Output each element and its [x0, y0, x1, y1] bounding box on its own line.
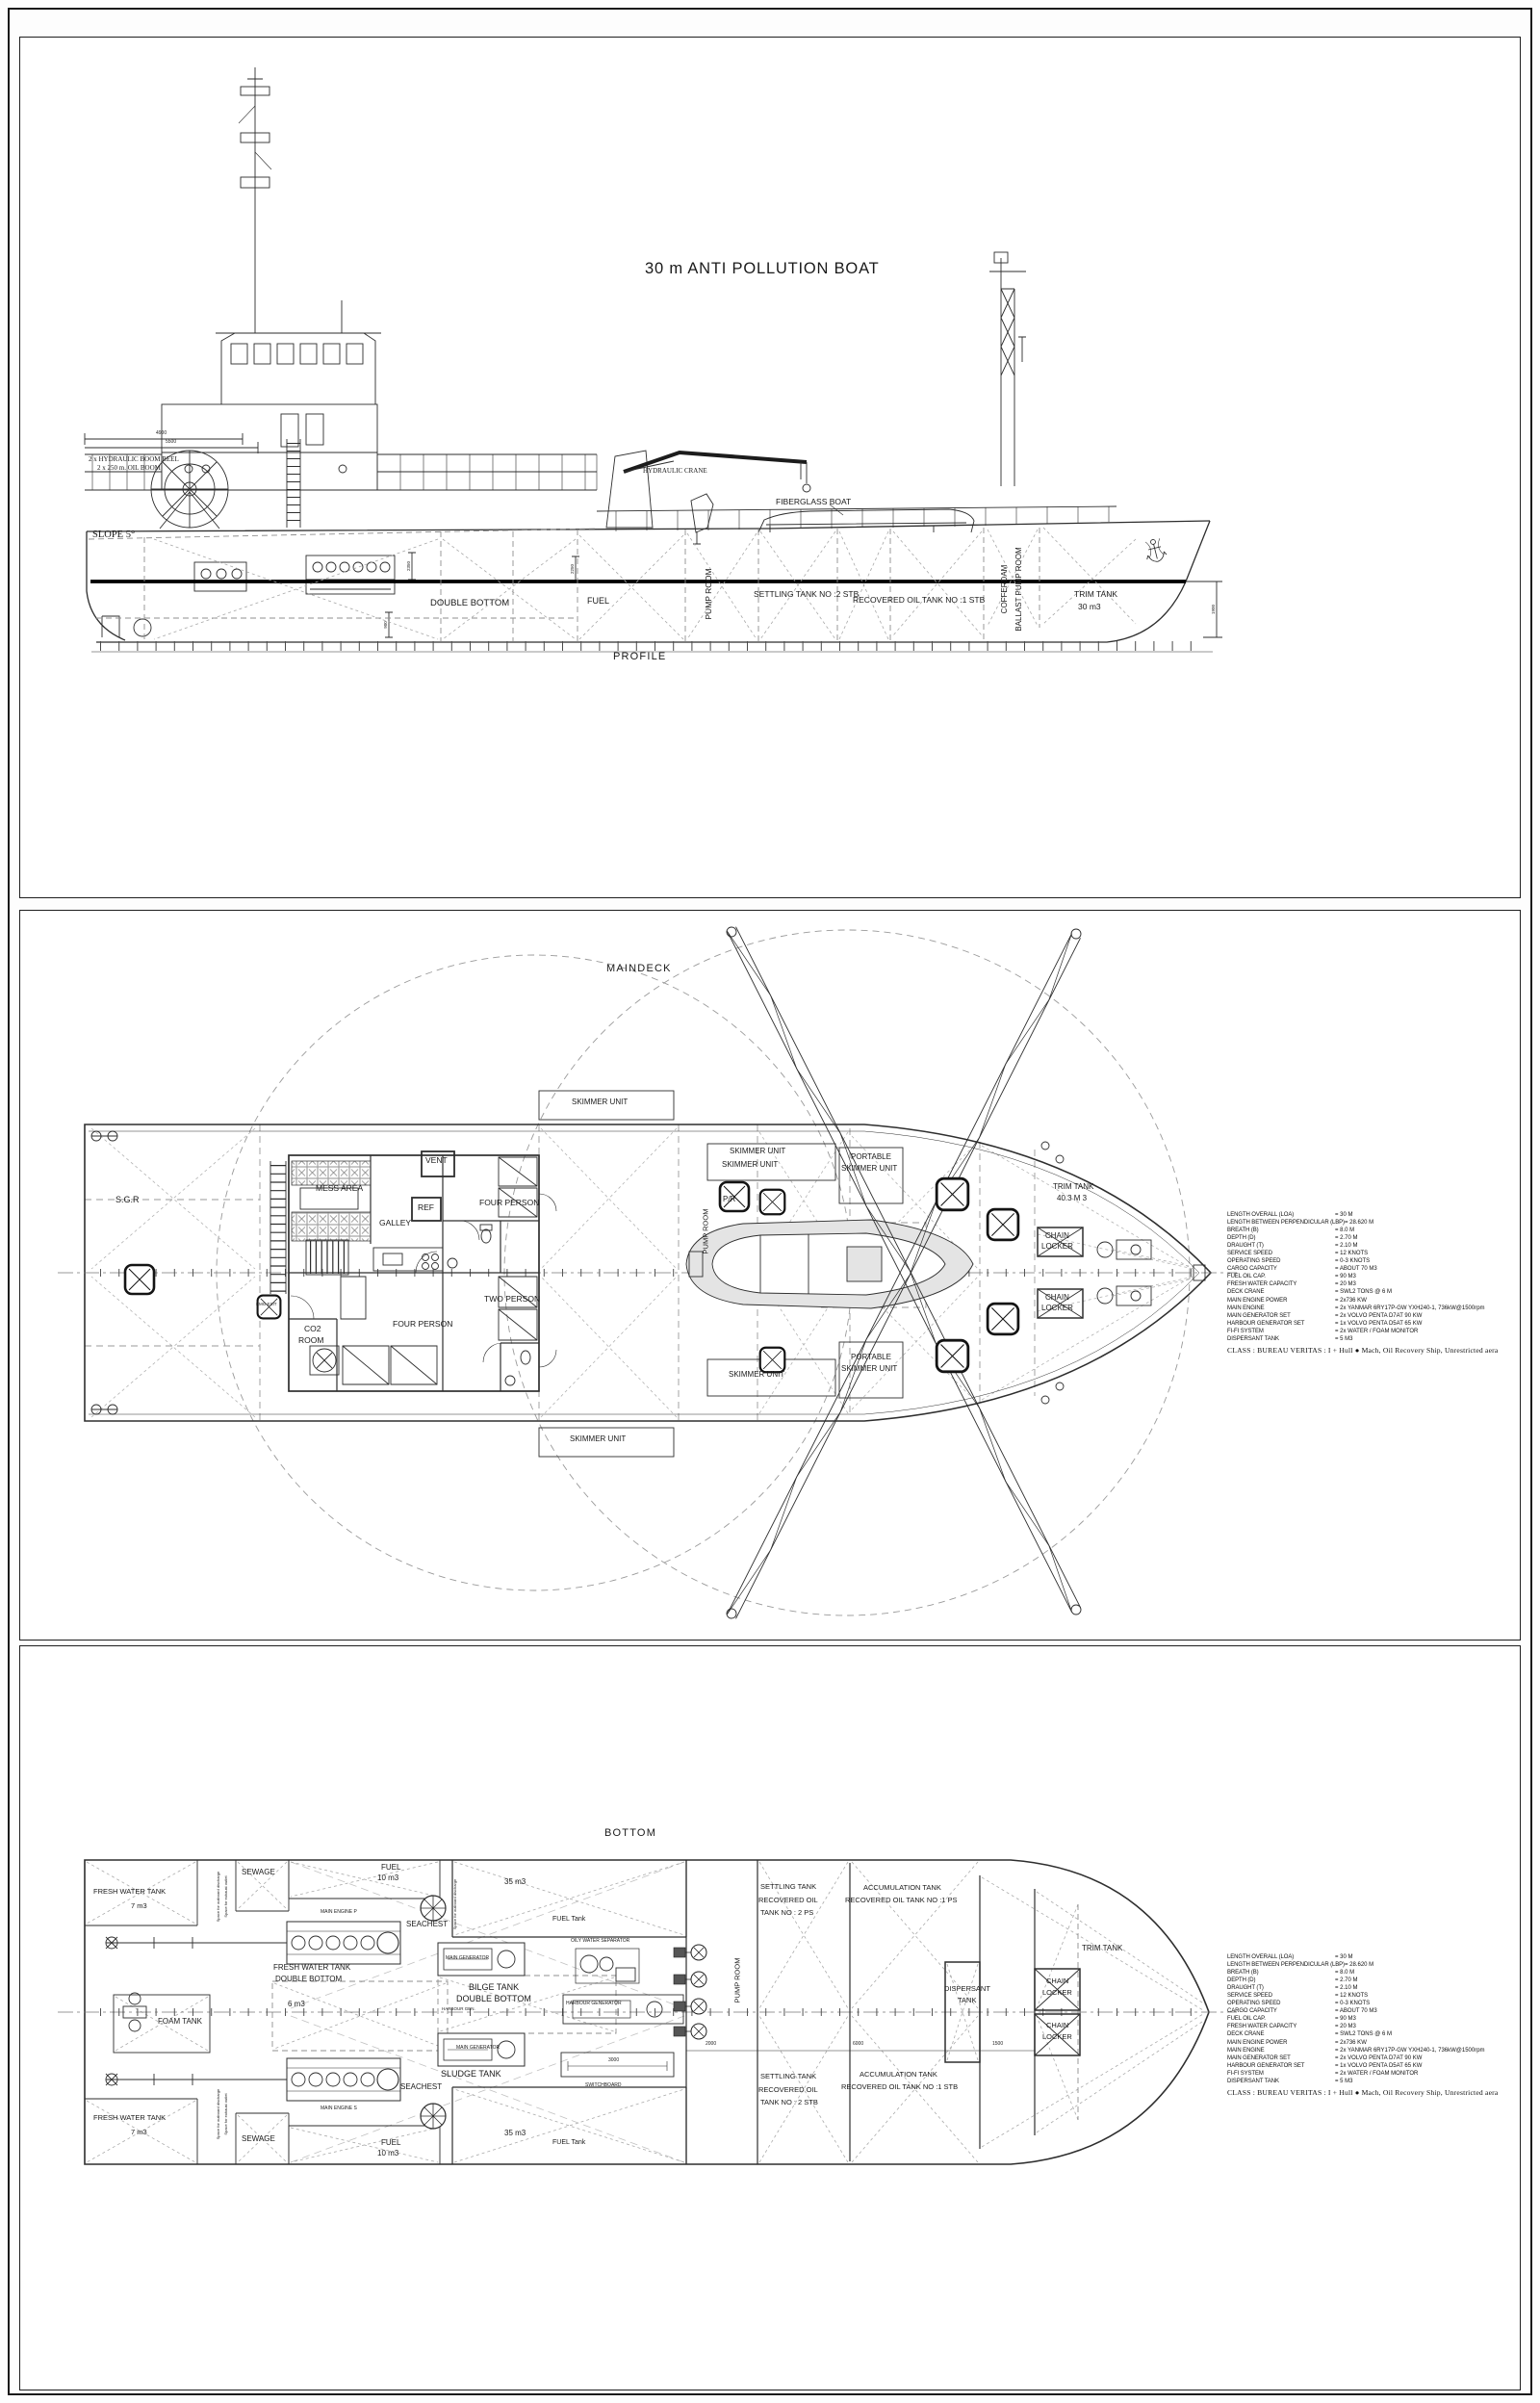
dim-1900: 1900: [1212, 605, 1217, 614]
dim-6000: 6000: [853, 2042, 863, 2047]
ballast-pump-room-label: BALLAST PUMP ROOM: [1015, 547, 1023, 631]
settling-ps-line2: RECOVERED OIL: [758, 1897, 818, 1904]
fresh-water-tank-upper-volume: 7 m3: [131, 1902, 147, 1910]
cofferdam-label: COFFERDAM: [1001, 565, 1009, 614]
particular-row: HARBOUR GENERATOR SET= 1x VOLVO PENTA D5…: [1227, 2062, 1508, 2070]
settling-tank-label: SETTLING TANK NO :2 STB: [754, 590, 859, 599]
class-notation-maindeck: CLASS : BUREAU VERITAS : I + Hull ● Mach…: [1227, 1346, 1508, 1355]
chain-locker-bottom-upper-line2: LOCKER: [1042, 1989, 1072, 1997]
fresh-water-tank-upper-label: FRESH WATER TANK: [93, 1888, 166, 1896]
space-exhaust-lower-note: Space for exhaust outlet: [224, 2093, 228, 2134]
portable-skimmer-upper-line2: SKIMMER UNIT: [841, 1165, 897, 1173]
chain-locker-bottom-lower-line2: LOCKER: [1042, 2033, 1072, 2041]
sgr-label: S.G.R: [115, 1196, 140, 1204]
dim-2250: 2250: [571, 564, 576, 574]
particulars-table-maindeck: LENGTH OVERALL (LOA)= 30 MLENGTH BETWEEN…: [1227, 1211, 1508, 1355]
particular-row: OPERATING SPEED= 0-3 KNOTS: [1227, 2000, 1508, 2007]
chain-locker-bottom-upper-line1: CHAIN: [1046, 1977, 1068, 1985]
particular-row: SERVICE SPEED= 12 KNOTS: [1227, 1992, 1508, 2000]
double-bottom-center-label: DOUBLE BOTTOM: [275, 1976, 342, 1983]
boom-reel-note-line1: 2 x HYDRAULIC BOOM REEL: [89, 456, 179, 463]
skimmer-unit-top-label: SKIMMER UNIT: [572, 1098, 628, 1106]
main-engine-p-label: MAIN ENGINE P: [321, 1910, 357, 1915]
settling-stb-line1: SETTLING TANK: [760, 2073, 816, 2080]
particular-row: BREATH (B)= 8.0 M: [1227, 1969, 1508, 1977]
trim-tank-label: TRIM TANK: [1074, 590, 1117, 599]
fiberglass-boat-label: FIBERGLASS BOAT: [776, 498, 851, 506]
oily-water-separator-label: OILY WATER SEPARATOR: [571, 1939, 629, 1944]
particular-row: DECK CRANE= SWL2 TONS @ 6 M: [1227, 1288, 1508, 1296]
dim-2000: 2000: [706, 2042, 716, 2047]
accumulation-stb-line2: RECOVERED OIL TANK NO :1 STB: [841, 2083, 958, 2091]
particular-row: LENGTH OVERALL (LOA)= 30 M: [1227, 1953, 1508, 1961]
particular-row: HARBOUR GENERATOR SET= 1x VOLVO PENTA D5…: [1227, 1320, 1508, 1328]
particular-row: DISPERSANT TANK= 5 M3: [1227, 2078, 1508, 2085]
particular-row: OPERATING SPEED= 0-3 KNOTS: [1227, 1257, 1508, 1265]
space-outboard-upper-note: Space for outboard discharge: [217, 1872, 220, 1922]
chain-locker-upper-line2: LOCKER: [1041, 1243, 1073, 1251]
particular-row: FUEL OIL CAP.= 90 M3: [1227, 1273, 1508, 1280]
slope-label: SLOPE 5°: [92, 530, 135, 541]
main-generator-lower-label: MAIN GENERATOR: [456, 2046, 500, 2051]
switchboard-label: SWITCHBOARD: [585, 2083, 622, 2088]
trim-tank-bottom-label: TRIM TANK: [1082, 1945, 1122, 1952]
foam-tank-label: FOAM TANK: [158, 2018, 202, 2026]
dim-2350: 2350: [407, 561, 412, 571]
trim-tank-maindeck-label: TRIM TANK: [1053, 1183, 1093, 1191]
main-engine-s-label: MAIN ENGINE S: [321, 2106, 357, 2111]
particular-row: LENGTH OVERALL (LOA)= 30 M: [1227, 1211, 1508, 1219]
dim-3000: 3000: [608, 2058, 619, 2063]
fuel-tank-lower-label: FUEL Tank: [552, 2139, 585, 2146]
recovered-oil-tank-label: RECOVERED OIL TANK NO :1 STB: [853, 596, 985, 605]
particular-row: FRESH WATER CAPACITY= 20 M3: [1227, 2023, 1508, 2030]
hydraulic-crane-label: HYDRAULIC CRANE: [643, 468, 707, 475]
mess-area-label: MESS AREA: [316, 1184, 363, 1193]
co2-room-line1: CO2: [304, 1325, 321, 1333]
particular-row: DISPERSANT TANK= 5 M3: [1227, 1335, 1508, 1343]
bilge-double-bottom-label: DOUBLE BOTTOM: [456, 1995, 531, 2003]
space-outboard-lower-note: Space for outboard discharge: [217, 2089, 220, 2139]
particular-row: FRESH WATER CAPACITY= 20 M3: [1227, 1280, 1508, 1288]
harbour-gen-small-label: HARBOUR GEN.: [442, 2007, 475, 2012]
fuel-10m3-upper-label: FUEL: [381, 1864, 400, 1872]
accumulation-ps-line2: RECOVERED OIL TANK NO :1 PS: [845, 1897, 958, 1904]
fuel-10m3-lower-label: FUEL: [381, 2139, 400, 2147]
seachest-upper-label: SEACHEST: [406, 1921, 448, 1928]
particular-row: CARGO CAPACITY= ABOUT 70 M3: [1227, 2007, 1508, 2015]
portable-skimmer-lower-line2: SKIMMER UNIT: [841, 1365, 897, 1373]
particular-row: BREATH (B)= 8.0 M: [1227, 1227, 1508, 1234]
dim-4900: 4900: [156, 431, 167, 436]
accumulation-stb-line1: ACCUMULATION TANK: [860, 2071, 937, 2079]
fresh-water-tank-lower-label: FRESH WATER TANK: [93, 2114, 166, 2122]
particular-row: DRAUGHT (T)= 2.10 M: [1227, 1984, 1508, 1992]
galley-label: GALLEY: [379, 1219, 411, 1227]
co2-room-line2: ROOM: [298, 1336, 323, 1345]
double-bottom-label: DOUBLE BOTTOM: [430, 599, 509, 608]
space-outboard-mid-note: Space for outboard discharge: [453, 1879, 457, 1929]
particular-row: SERVICE SPEED= 12 KNOTS: [1227, 1250, 1508, 1257]
portable-skimmer-upper-line1: PORTABLE: [851, 1153, 891, 1161]
bilge-tank-label: BILGE TANK: [469, 1983, 519, 1992]
skimmer-unit-box-line1: SKIMMER UNIT: [730, 1148, 785, 1155]
drawing-sheet: 30 m ANTI POLLUTION BOAT 2 x HYDRAULIC B…: [0, 0, 1540, 2403]
accumulation-ps-line1: ACCUMULATION TANK: [863, 1884, 941, 1892]
settling-ps-line1: SETTLING TANK: [760, 1883, 816, 1891]
fuel-35m3-upper-volume: 35 m3: [504, 1878, 526, 1886]
particular-row: MAIN ENGINE POWER= 2x736 KW: [1227, 2039, 1508, 2047]
particular-row: MAIN ENGINE= 2x YANMAR 6RY17P-GW YXH240-…: [1227, 2047, 1508, 2054]
particular-row: FI-FI SYSTEM= 2x WATER / FOAM MONITOR: [1227, 2070, 1508, 2078]
four-person-upper-label: FOUR PERSON: [479, 1199, 539, 1207]
main-generator-upper-label: MAIN GENERATOR: [446, 1956, 489, 1961]
trim-tank-volume: 30 m3: [1078, 603, 1101, 611]
particular-row: DRAUGHT (T)= 2.10 M: [1227, 1242, 1508, 1250]
particular-row: MAIN GENERATOR SET= 2x VOLVO PENTA D7AT …: [1227, 2054, 1508, 2062]
space-exhaust-upper-note: Space for exhaust outlet: [224, 1875, 228, 1917]
particular-row: MAIN GENERATOR SET= 2x VOLVO PENTA D7AT …: [1227, 1312, 1508, 1320]
sewage-upper-label: SEWAGE: [242, 1869, 275, 1876]
particular-row: FUEL OIL CAP.= 90 M3: [1227, 2015, 1508, 2023]
maindeck-view-label: MAINDECK: [606, 964, 672, 974]
particular-row: MAIN ENGINE= 2x YANMAR 6RY17P-GW YXH240-…: [1227, 1305, 1508, 1312]
dim-900: 900: [384, 621, 389, 629]
chain-locker-lower-line1: CHAIN: [1045, 1294, 1069, 1302]
ref-label: REF: [418, 1203, 434, 1212]
skimmer-unit-box-line2: SKIMMER UNIT: [722, 1161, 778, 1169]
fresh-water-tank-center-label: FRESH WATER TANK: [273, 1964, 350, 1972]
bottom-view-label: BOTTOM: [604, 1828, 656, 1839]
fresh-water-tank-lower-volume: 7 m3: [131, 2129, 147, 2136]
particular-row: LENGTH BETWEEN PERPENDICULAR (LBP)= 28.6…: [1227, 1219, 1508, 1227]
fuel-35m3-lower-volume: 35 m3: [504, 2130, 526, 2137]
fuel-10m3-upper-volume: 10 m3: [377, 1874, 398, 1882]
particular-row: DECK CRANE= SWL2 TONS @ 6 M: [1227, 2030, 1508, 2038]
particular-row: DEPTH (D)= 2.70 M: [1227, 1234, 1508, 1242]
chain-locker-lower-line2: LOCKER: [1041, 1305, 1073, 1312]
skimmer-unit-mid-lower-label: SKIMMER UNIT: [729, 1371, 784, 1379]
boom-reel-note-line2: 2 x 250 m. OIL BOOM: [97, 465, 161, 472]
sewage-lower-label: SEWAGE: [242, 2135, 275, 2143]
two-person-label: TWO PERSON: [484, 1295, 540, 1304]
settling-ps-line3: TANK NO : 2 PS: [760, 1909, 813, 1917]
sludge-tank-label: SLUDGE TANK: [441, 2070, 501, 2079]
dispersant-tank-line2: TANK: [958, 1997, 976, 2004]
particular-row: MAIN ENGINE POWER= 2x736 KW: [1227, 1297, 1508, 1305]
particular-row: LENGTH BETWEEN PERPENDICULAR (LBP)= 28.6…: [1227, 1961, 1508, 1969]
fresh-water-center-volume: 6 m3: [288, 2001, 305, 2008]
sheet-title: 30 m ANTI POLLUTION BOAT: [645, 261, 880, 277]
fuel-label: FUEL: [587, 597, 609, 606]
emg-exit-label: EMG EXIT: [256, 1303, 277, 1307]
seachest-lower-label: SEACHEST: [400, 2083, 442, 2091]
particular-row: DEPTH (D)= 2.70 M: [1227, 1977, 1508, 1984]
particulars-rows: LENGTH OVERALL (LOA)= 30 MLENGTH BETWEEN…: [1227, 1953, 1508, 2085]
pr-label: P/R: [723, 1196, 735, 1203]
particulars-rows: LENGTH OVERALL (LOA)= 30 MLENGTH BETWEEN…: [1227, 1211, 1508, 1343]
settling-stb-line3: TANK NO : 2 STB: [760, 2099, 818, 2106]
portable-skimmer-lower-line1: PORTABLE: [851, 1354, 891, 1361]
profile-view-label: PROFILE: [613, 652, 666, 662]
fuel-10m3-lower-volume: 10 m3: [377, 2150, 398, 2158]
skimmer-unit-bottom-label: SKIMMER UNIT: [570, 1435, 626, 1443]
dim-5500: 5500: [166, 440, 176, 445]
trim-tank-maindeck-volume: 40.3 M 3: [1057, 1195, 1087, 1202]
dim-1500: 1500: [992, 2042, 1003, 2047]
fuel-tank-upper-label: FUEL Tank: [552, 1916, 585, 1923]
particular-row: CARGO CAPACITY= ABOUT 70 M3: [1227, 1265, 1508, 1273]
four-person-lower-label: FOUR PERSON: [393, 1320, 452, 1329]
particular-row: FI-FI SYSTEM= 2x WATER / FOAM MONITOR: [1227, 1328, 1508, 1335]
pump-room-maindeck-label: PUMP ROOM: [702, 1209, 709, 1254]
particulars-table-bottom: LENGTH OVERALL (LOA)= 30 MLENGTH BETWEEN…: [1227, 1953, 1508, 2097]
pump-room-bottom-label: PUMP ROOM: [733, 1958, 741, 2003]
pump-room-label: PUMP ROOM: [705, 568, 713, 619]
vent-label: VENT: [425, 1156, 448, 1165]
chain-locker-bottom-lower-line1: CHAIN: [1046, 2022, 1068, 2029]
dispersant-tank-line1: DISPERSANT: [944, 1985, 990, 1993]
harbour-generator-label: HARBOUR GENERATOR: [566, 2002, 622, 2006]
chain-locker-upper-line1: CHAIN: [1045, 1232, 1069, 1240]
settling-stb-line2: RECOVERED OIL: [758, 2086, 818, 2094]
class-notation-bottom: CLASS : BUREAU VERITAS : I + Hull ● Mach…: [1227, 2088, 1508, 2097]
